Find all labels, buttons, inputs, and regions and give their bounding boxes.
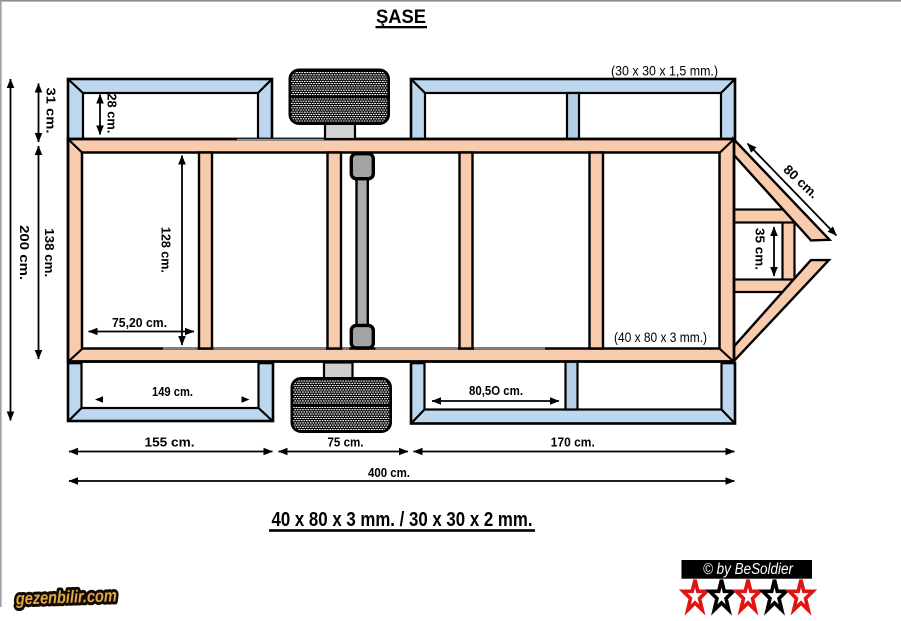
svg-text:(30 x 30 x 1,5 mm.): (30 x 30 x 1,5 mm.) <box>611 63 718 79</box>
svg-text:35 cm.: 35 cm. <box>752 228 767 270</box>
svg-text:149 cm.: 149 cm. <box>152 384 193 399</box>
svg-text:© by BeSoldier: © by BeSoldier <box>703 561 794 578</box>
svg-text:200 cm.: 200 cm. <box>17 225 32 280</box>
svg-text:28 cm.: 28 cm. <box>105 93 120 133</box>
svg-text:155 cm.: 155 cm. <box>145 435 195 450</box>
svg-text:75,20 cm.: 75,20 cm. <box>112 315 167 330</box>
svg-text:ŞASE: ŞASE <box>376 6 426 28</box>
svg-text:128 cm.: 128 cm. <box>158 227 173 273</box>
svg-text:400 cm.: 400 cm. <box>368 465 410 480</box>
svg-text:80,5O cm.: 80,5O cm. <box>469 383 523 398</box>
svg-text:75 cm.: 75 cm. <box>328 435 364 450</box>
svg-text:(40 x 80 x 3 mm.): (40 x 80 x 3 mm.) <box>614 329 707 345</box>
svg-text:31 cm.: 31 cm. <box>43 88 58 134</box>
svg-text:170 cm.: 170 cm. <box>551 435 595 450</box>
svg-text:138 cm.: 138 cm. <box>42 228 57 277</box>
svg-text:40 x 80 x 3 mm. / 30 x 30 x 2: 40 x 80 x 3 mm. / 30 x 30 x 2 mm. <box>272 508 533 531</box>
svg-text:gezenbilir.com: gezenbilir.com <box>15 585 117 608</box>
